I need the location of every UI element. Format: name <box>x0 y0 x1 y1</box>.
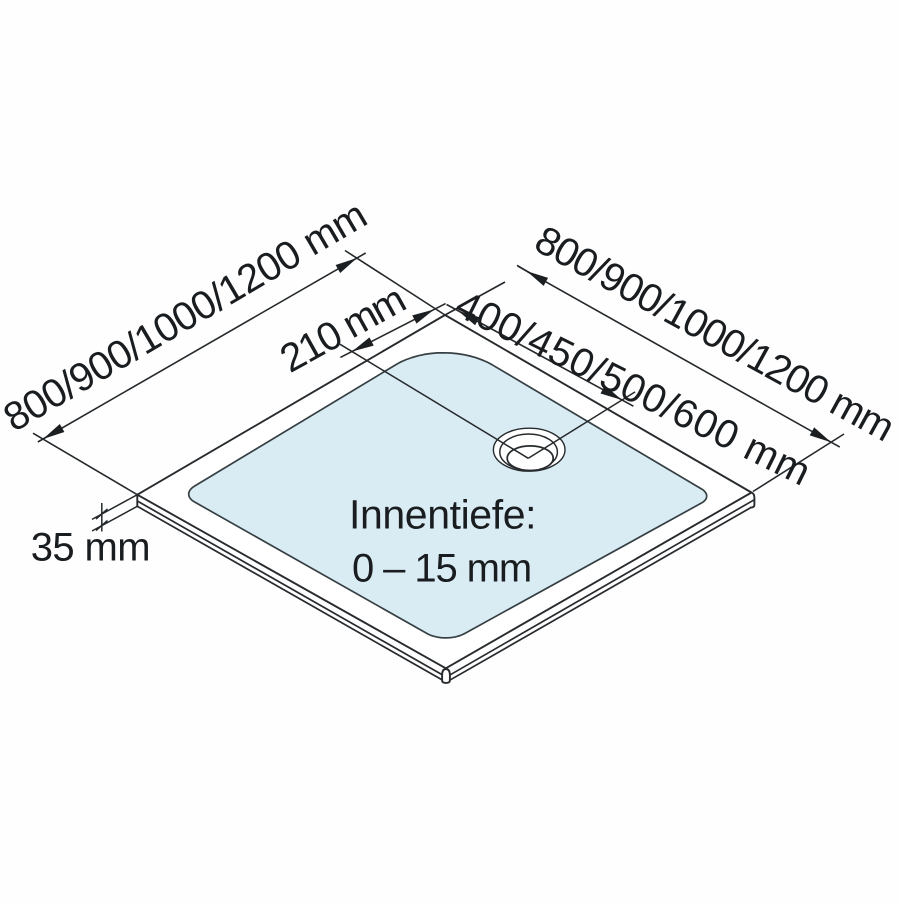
svg-text:Innentiefe:: Innentiefe: <box>349 492 536 538</box>
svg-text:0 – 15 mm: 0 – 15 mm <box>352 547 531 591</box>
svg-text:35 mm: 35 mm <box>31 526 150 570</box>
